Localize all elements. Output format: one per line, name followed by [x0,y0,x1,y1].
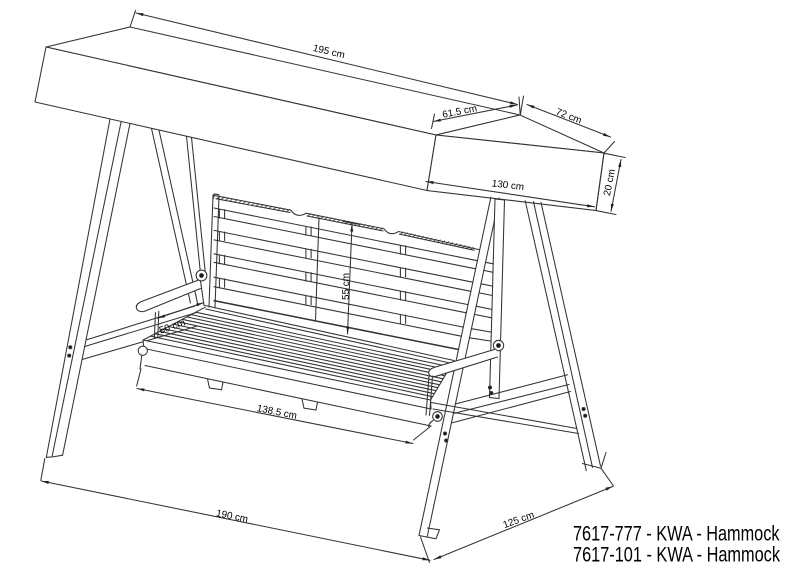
svg-text:72 cm: 72 cm [554,107,583,127]
svg-text:138.5 cm: 138.5 cm [256,403,298,422]
svg-text:7617-101 - KWA - Hammock: 7617-101 - KWA - Hammock [573,543,780,567]
svg-text:20 cm: 20 cm [602,168,618,197]
svg-text:125 cm: 125 cm [502,510,536,531]
svg-text:190 cm: 190 cm [215,508,249,525]
svg-text:195 cm: 195 cm [312,43,346,61]
svg-text:55 cm: 55 cm [341,273,352,300]
